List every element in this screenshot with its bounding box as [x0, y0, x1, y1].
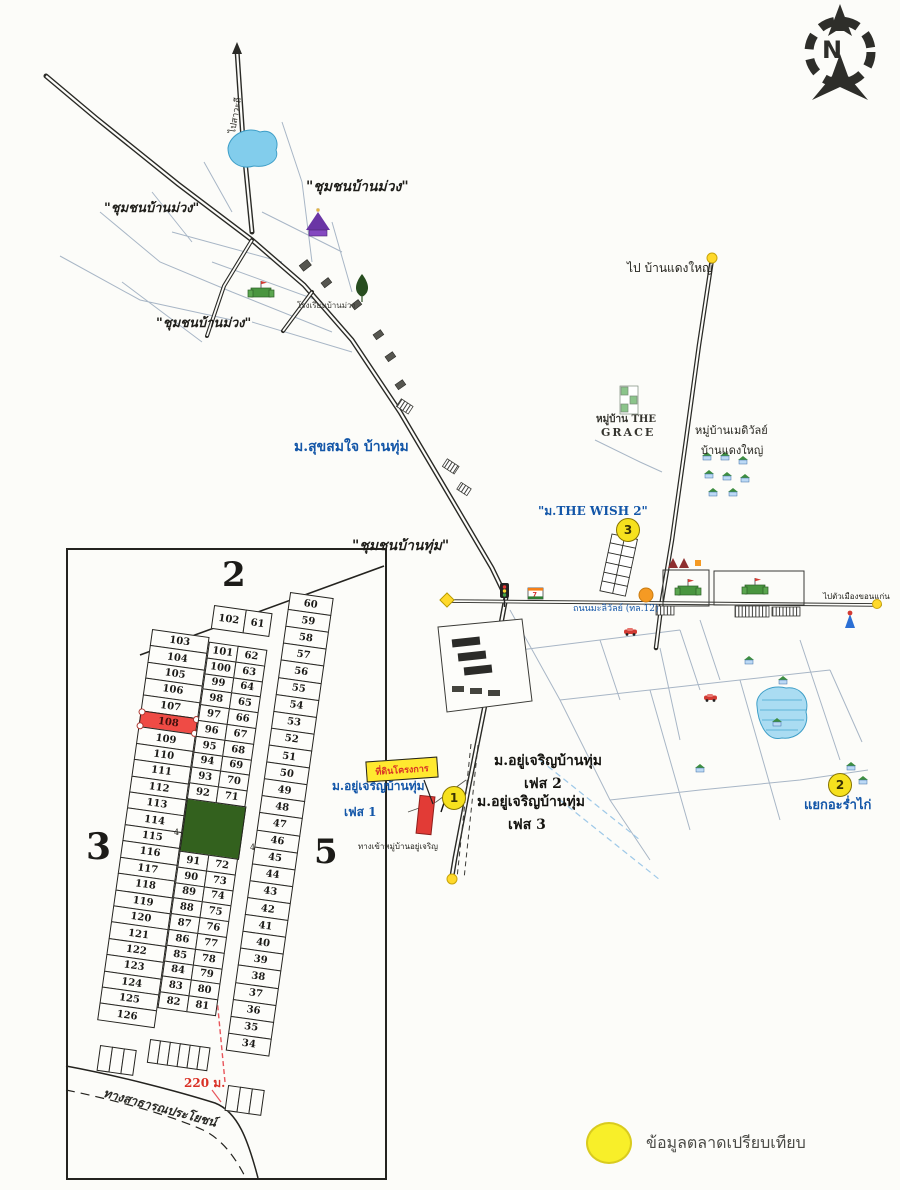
- pond-icon: [757, 687, 807, 739]
- inset-zone-5: 5: [314, 832, 338, 872]
- selection-handle[interactable]: [138, 708, 146, 716]
- inset-strips-under-d: [225, 1086, 265, 1116]
- school-castle-icon: [675, 579, 701, 595]
- inset-green-area: [179, 798, 246, 860]
- comparison-marker-3: 3: [616, 518, 640, 542]
- map-page: 7 2 3 5 ที่ดินโครงการ ทางสาธารณประโยชน์ …: [0, 0, 900, 1190]
- map-label-1: "ชุมชนบ้านม่วง": [104, 197, 199, 218]
- road-maliwan-horizontal: [443, 601, 880, 605]
- map-label-8: GRACE: [601, 426, 655, 439]
- map-label-19: ถนนมะลิวัลย์ (ทล.12): [573, 601, 659, 615]
- map-label-6: ไป บ้านแดงใหญ่: [627, 259, 712, 278]
- yellow-dot-icon: [447, 874, 457, 884]
- comparison-marker-2: 2: [828, 773, 852, 797]
- map-label-14: เฟส 3: [508, 814, 546, 836]
- temple-icon: [306, 208, 330, 236]
- map-label-20: ไปตัวเมืองขอนแก่น: [823, 590, 890, 603]
- map-label-23: 4: [174, 828, 179, 837]
- map-label-4: ม.สุขสมใจ บ้านทุ่ม: [294, 436, 409, 458]
- inset-strips-under-a: [97, 1046, 137, 1076]
- pond-icon: [228, 130, 277, 167]
- legend-yellow-circle-icon: [586, 1122, 632, 1164]
- factory-compound-icon: [438, 619, 532, 712]
- traffic-light-icon: [500, 583, 509, 607]
- map-label-11: ม.อยู่เจริญบ้านทุ่ม: [494, 750, 602, 772]
- plot-102: 102: [211, 605, 247, 633]
- map-label-7: หมู่บ้าน THE: [596, 412, 656, 427]
- map-label-17: ทางเข้าหมู่บ้านอยู่เจริญ: [358, 840, 438, 853]
- plot-61: 61: [242, 609, 272, 637]
- shuttle-shrine-icon: [845, 611, 855, 628]
- map-label-24: 4: [250, 843, 255, 852]
- inset-zone-3: 3: [86, 826, 111, 868]
- seven-eleven-icon: 7: [528, 588, 543, 599]
- grace-plot-grid: [620, 386, 638, 414]
- orange-circle-icon: [639, 588, 653, 602]
- map-label-16: เฟส 1: [344, 803, 376, 822]
- red-car-icon: [704, 694, 717, 702]
- measure-label: 220 ม.: [184, 1074, 225, 1093]
- tree-icon: [356, 274, 368, 302]
- map-label-0: "ชุมชนบ้านม่วง": [306, 176, 409, 198]
- legend-label: ข้อมูลตลาดเปรียบเทียบ: [646, 1131, 806, 1156]
- roadside-buildings: [299, 260, 406, 390]
- map-label-2: "ชุมชนบ้านม่วง": [156, 312, 251, 333]
- map-label-18: แยกอะร่ำไก่: [804, 794, 871, 815]
- map-label-13: ม.อยู่เจริญบ้านทุ่ม: [477, 791, 585, 813]
- map-label-10: บ้านแดงใหญ่: [701, 441, 763, 459]
- map-label-22: โรงเรียนบ้านม่วง: [297, 299, 355, 312]
- svg-text:7: 7: [533, 591, 538, 599]
- school-castle-icon: [742, 578, 768, 594]
- shrine-icons: [668, 558, 701, 568]
- red-car-icon: [624, 628, 637, 636]
- map-label-3: "ชุมชนบ้านทุ่ม": [352, 535, 449, 557]
- legend: ข้อมูลตลาดเปรียบเทียบ: [586, 1122, 806, 1164]
- compass-north-label: N: [822, 36, 842, 64]
- map-label-9: หมู่บ้านเมดิวัลย์: [695, 421, 768, 439]
- inset-zone-2: 2: [222, 555, 246, 595]
- comparison-marker-1: 1: [442, 786, 466, 810]
- wish2-plot-grid: [600, 534, 637, 596]
- yellow-diamond-icon: [440, 593, 454, 607]
